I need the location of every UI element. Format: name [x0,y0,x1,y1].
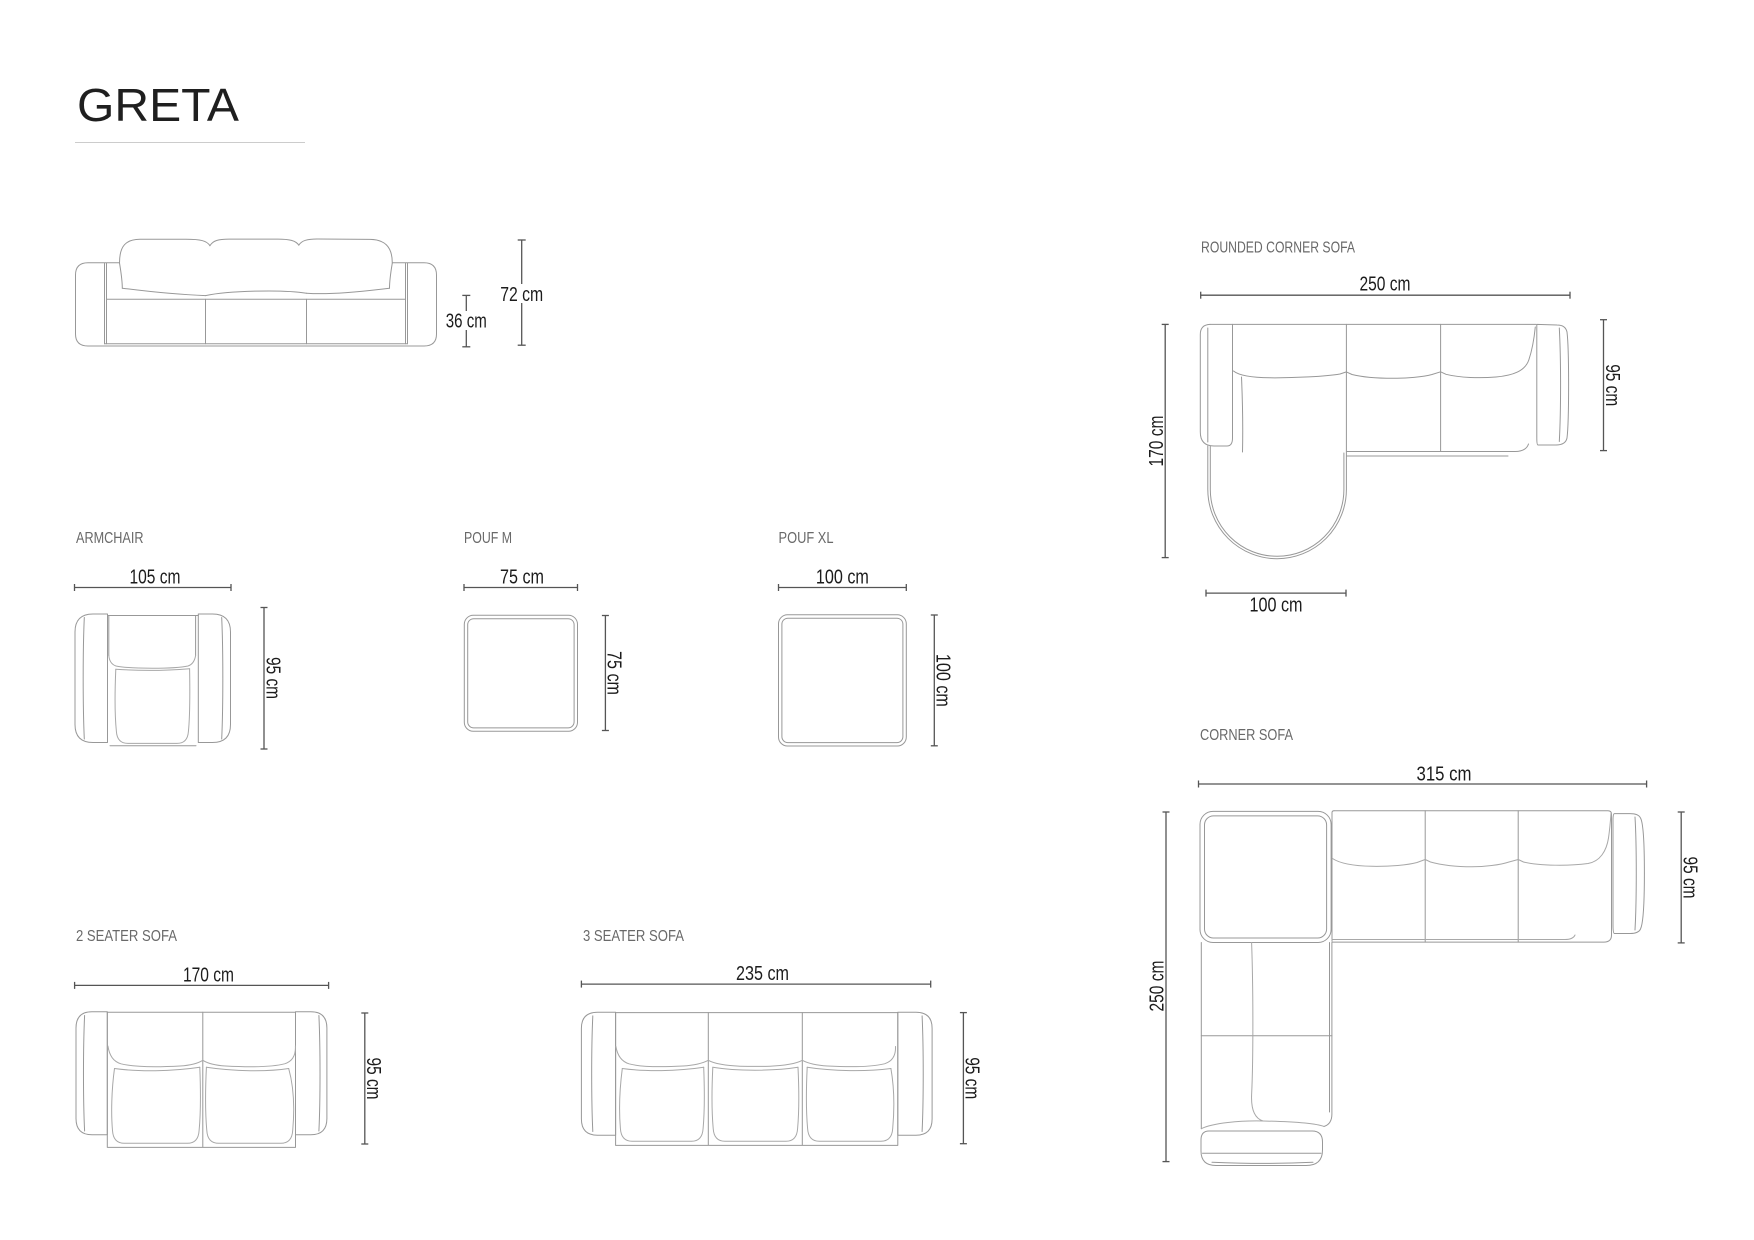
svg-text:95 cm: 95 cm [961,1057,983,1099]
svg-text:100 cm: 100 cm [816,567,869,589]
svg-text:95 cm: 95 cm [261,657,283,699]
svg-text:170 cm: 170 cm [183,964,234,986]
svg-text:POUF M: POUF M [464,530,512,547]
svg-text:2 SEATER SOFA: 2 SEATER SOFA [76,928,178,945]
svg-text:75 cm: 75 cm [500,567,544,589]
svg-text:75 cm: 75 cm [603,651,625,695]
svg-text:GRETA: GRETA [77,79,239,131]
svg-text:ARMCHAIR: ARMCHAIR [76,530,144,547]
svg-text:250 cm: 250 cm [1360,274,1411,296]
svg-text:3 SEATER SOFA: 3 SEATER SOFA [583,928,685,945]
svg-text:95 cm: 95 cm [362,1058,384,1100]
svg-text:ROUNDED CORNER SOFA: ROUNDED CORNER SOFA [1201,240,1356,257]
svg-text:95 cm: 95 cm [1679,857,1701,899]
svg-text:170 cm: 170 cm [1146,416,1168,467]
svg-text:100 cm: 100 cm [932,654,954,707]
svg-text:95 cm: 95 cm [1601,364,1623,406]
svg-text:POUF XL: POUF XL [779,530,834,547]
svg-text:315 cm: 315 cm [1417,764,1472,786]
svg-text:CORNER SOFA: CORNER SOFA [1200,727,1294,744]
svg-text:36 cm: 36 cm [446,311,487,333]
svg-text:72 cm: 72 cm [500,284,543,306]
svg-text:100 cm: 100 cm [1250,595,1303,617]
svg-text:235 cm: 235 cm [736,963,789,985]
svg-text:250 cm: 250 cm [1147,961,1169,1012]
svg-text:105 cm: 105 cm [130,567,181,589]
